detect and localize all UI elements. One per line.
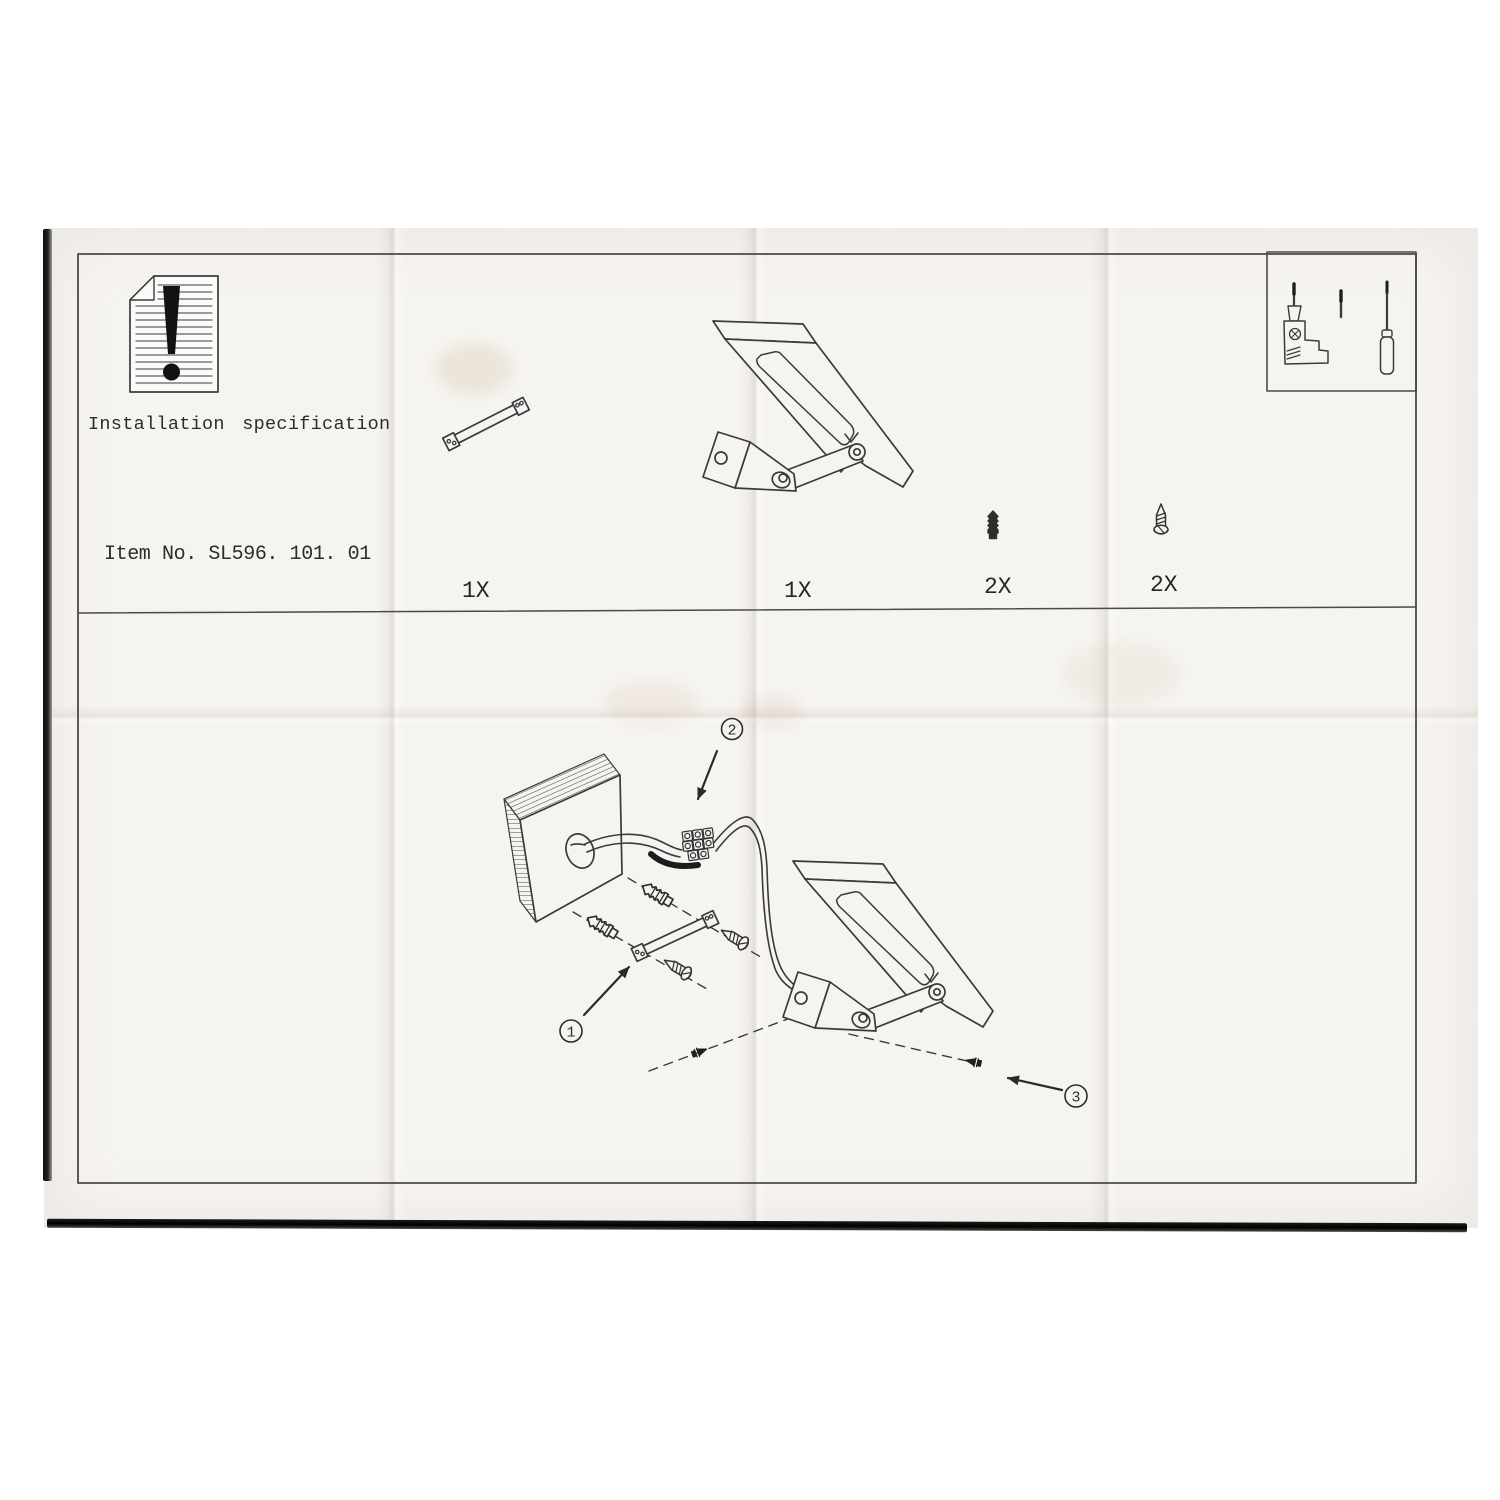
screwdriver-icon xyxy=(1381,282,1394,374)
screw-part-icon xyxy=(1154,504,1168,534)
warning-document-icon xyxy=(130,276,218,392)
installation-diagram: 1 2 3 xyxy=(504,719,1087,1108)
mounting-screw-drawing xyxy=(718,924,751,951)
sheet-heading: Installation specification xyxy=(88,414,390,435)
parts-row-divider-line xyxy=(78,607,1416,613)
page-border-frame xyxy=(78,252,1416,1183)
tools-box xyxy=(1284,282,1394,374)
line-art-layer: 1 2 3 xyxy=(0,0,1500,1500)
wall-lamp-part-drawing xyxy=(703,321,913,491)
step-3-label: 3 xyxy=(1065,1085,1087,1107)
svg-text:2: 2 xyxy=(727,723,736,740)
step-3-arrow xyxy=(1008,1078,1062,1090)
wall-anchor-drawing xyxy=(585,913,619,940)
mounting-bar-part-drawing xyxy=(443,397,530,450)
terminal-block-icon xyxy=(681,828,716,862)
step-2-label: 2 xyxy=(722,719,743,740)
svg-text:3: 3 xyxy=(1071,1090,1080,1107)
mounting-bar-drawing xyxy=(631,911,718,962)
scanned-instruction-sheet: 1 2 3 Installation specification Item No… xyxy=(0,0,1500,1500)
qty-label-anchor: 2X xyxy=(984,574,1012,600)
small-screw-drawing xyxy=(691,1045,708,1059)
qty-label-mounting-bar: 1X xyxy=(462,578,490,604)
step-1-label: 1 xyxy=(560,1020,582,1042)
small-screw-drawing xyxy=(965,1056,982,1068)
drill-icon xyxy=(1284,284,1328,364)
wire xyxy=(716,826,795,991)
qty-label-lamp: 1X xyxy=(784,578,812,604)
step-arrows xyxy=(584,751,1062,1090)
step-1-arrow xyxy=(584,967,629,1015)
wire xyxy=(712,817,800,989)
svg-text:1: 1 xyxy=(566,1025,575,1042)
qty-label-screw: 2X xyxy=(1150,572,1178,598)
mounting-screw-drawing xyxy=(661,954,694,981)
wall-lamp-assembly-drawing xyxy=(783,861,993,1031)
wall-anchor-drawing xyxy=(640,881,674,908)
step-2-arrow xyxy=(698,751,717,799)
item-number: Item No. SL596. 101. 01 xyxy=(104,543,371,566)
step-labels: 1 2 3 xyxy=(560,719,1087,1108)
wall-anchor-part-icon xyxy=(988,511,998,539)
